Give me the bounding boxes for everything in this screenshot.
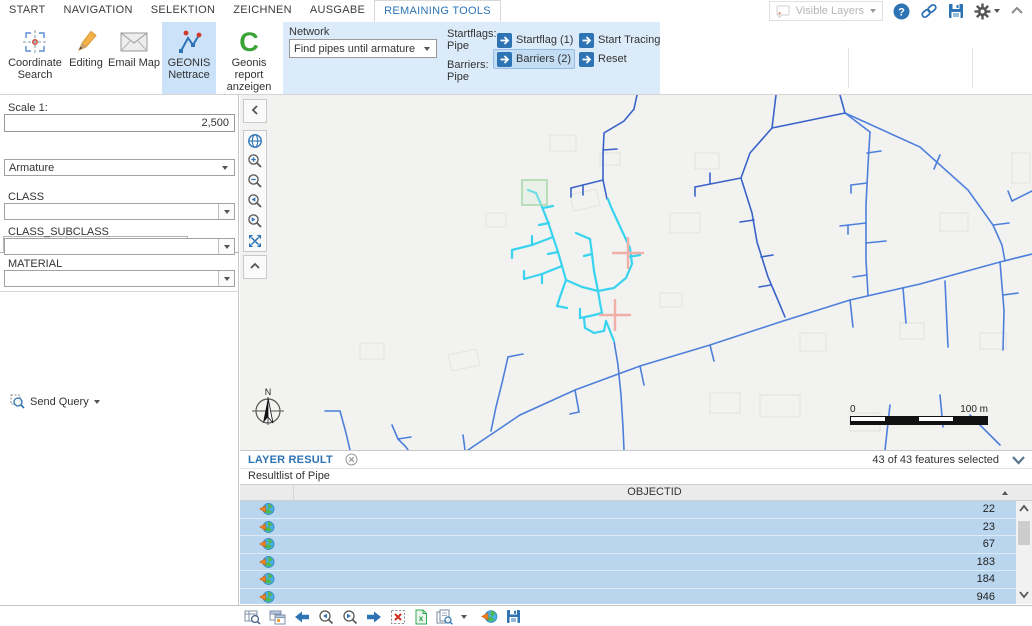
crosshair-icon	[22, 27, 48, 57]
ribbon: Coordinate Search Editing Email Map GEON…	[0, 22, 1032, 95]
tabbar-spacer	[501, 0, 769, 22]
scale-input[interactable]: 2,500	[4, 114, 235, 132]
open-table-icon[interactable]	[269, 609, 286, 625]
table-row[interactable]: 67	[240, 536, 1016, 554]
link-icon[interactable]	[920, 3, 938, 19]
report-preview-icon[interactable]	[436, 609, 453, 625]
panel-divider	[0, 291, 239, 292]
traced-pipes	[512, 190, 640, 341]
report-caret-icon[interactable]	[461, 615, 467, 619]
collapse-results-icon[interactable]	[1011, 454, 1026, 466]
map-canvas[interactable]: N	[240, 95, 1032, 450]
result-panel-header: LAYER RESULT 43 of 43 features selected	[240, 451, 1032, 469]
table-row[interactable]: 184	[240, 571, 1016, 589]
zoom-out-icon[interactable]	[244, 171, 266, 191]
barriers-value: Pipe	[447, 71, 469, 83]
email-map-button[interactable]: Email Map	[106, 22, 162, 94]
arrow-right-icon	[579, 52, 594, 67]
pipe-network	[325, 113, 1032, 450]
scalebar-start-label: 0	[850, 405, 856, 415]
chevron-left-icon	[244, 100, 266, 120]
table-scrollbar[interactable]	[1016, 501, 1032, 604]
chevron-down-icon	[870, 9, 876, 13]
material-label: MATERIAL	[8, 258, 62, 270]
icon-column-header	[240, 485, 294, 500]
geonis-report-label: Geonis report anzeigen	[216, 57, 282, 93]
full-extent-arrows-icon[interactable]	[244, 231, 266, 251]
flash-feature-icon[interactable]	[240, 520, 293, 534]
scalebar-end-label: 100 m	[960, 405, 988, 415]
scrollbar-thumb[interactable]	[1018, 521, 1030, 545]
tab-ausgabe[interactable]: AUSGABE	[301, 0, 374, 22]
start-tracing-button-label: Start Tracing	[598, 34, 660, 46]
pipe-network-dark	[571, 95, 845, 317]
arrow-right-icon	[497, 52, 512, 67]
reset-button-label: Reset	[598, 53, 627, 65]
startflag-button[interactable]: Startflag (1)	[493, 30, 577, 50]
compass-n-label: N	[265, 387, 272, 397]
email-map-label: Email Map	[108, 57, 160, 69]
network-dropdown[interactable]: Find pipes until armature cl...	[289, 39, 437, 58]
tab-zeichnen[interactable]: ZEICHNEN	[224, 0, 301, 22]
query-type-value: Armature	[5, 162, 216, 174]
send-query-label: Send Query	[30, 396, 89, 408]
tab-remaining-tools[interactable]: REMAINING TOOLS	[374, 0, 501, 22]
flash-feature-icon[interactable]	[240, 555, 293, 569]
objectid-value: 184	[293, 573, 1016, 585]
objectid-value: 67	[293, 538, 1016, 550]
objectid-value: 22	[293, 503, 1016, 515]
send-query-caret-icon	[94, 400, 100, 404]
result-rows: 22 23 67 183 184 946	[240, 501, 1016, 604]
flash-all-features-icon[interactable]	[481, 609, 498, 624]
flash-feature-icon[interactable]	[240, 572, 293, 586]
coordinate-search-button[interactable]: Coordinate Search	[6, 22, 64, 94]
nettrace-options-group: Network Find pipes until armature cl... …	[283, 22, 660, 94]
table-row[interactable]: 946	[240, 589, 1016, 605]
table-row[interactable]: 183	[240, 554, 1016, 572]
quick-access-bar: Visible Layers ?	[769, 0, 1032, 22]
geonis-nettrace-button[interactable]: GEONIS Nettrace	[162, 22, 216, 94]
save-icon[interactable]	[948, 3, 964, 19]
tab-start[interactable]: START	[0, 0, 55, 22]
geonis-report-icon: C	[239, 27, 259, 57]
sort-ascending-icon[interactable]	[1002, 491, 1008, 495]
map-navigation-toolbar	[243, 130, 267, 252]
send-query-button[interactable]: Send Query	[10, 394, 100, 409]
start-tracing-button[interactable]: Start Tracing	[575, 30, 664, 50]
pencil-icon	[74, 27, 98, 57]
next-extent-icon[interactable]	[244, 211, 266, 231]
coordinate-search-label: Coordinate Search	[6, 57, 64, 81]
chevron-down-icon[interactable]	[218, 271, 234, 286]
clear-selection-icon[interactable]	[390, 609, 406, 625]
previous-record-icon[interactable]	[294, 610, 310, 624]
table-row[interactable]: 22	[240, 501, 1016, 519]
svg-text:x: x	[419, 614, 424, 623]
barriers-button-label: Barriers (2)	[516, 53, 571, 65]
visible-layers-label: Visible Layers	[796, 5, 864, 17]
export-excel-icon[interactable]: x	[414, 609, 428, 625]
save-result-icon[interactable]	[506, 609, 521, 624]
ribbon-separator	[972, 48, 973, 88]
zoom-next-record-icon[interactable]	[342, 609, 358, 625]
scale-label: Scale 1:	[8, 102, 48, 114]
scroll-down-icon[interactable]	[1017, 589, 1031, 600]
comment-bubble-icon	[776, 5, 790, 18]
objectid-value: 946	[293, 591, 1016, 603]
barrier-marker-2	[599, 299, 631, 331]
editing-button[interactable]: Editing	[66, 22, 106, 94]
scroll-up-icon[interactable]	[1017, 503, 1031, 514]
startflags-label: Startflags:	[447, 28, 497, 40]
network-group-label: Network	[289, 26, 329, 38]
gear-caret-icon	[994, 9, 1000, 13]
ribbon-tab-bar: START NAVIGATION SELEKTION ZEICHNEN AUSG…	[0, 0, 1032, 22]
startflags-value: Pipe	[447, 40, 469, 52]
geonis-report-button[interactable]: C Geonis report anzeigen	[216, 22, 282, 94]
building-outlines	[360, 135, 1030, 431]
layer-result-panel: LAYER RESULT 43 of 43 features selected …	[240, 450, 1032, 605]
next-record-icon[interactable]	[366, 610, 382, 624]
envelope-icon	[120, 27, 148, 57]
arrow-right-icon	[497, 33, 512, 48]
help-icon[interactable]: ?	[893, 3, 910, 20]
flash-feature-icon[interactable]	[240, 502, 293, 516]
globe-full-extent-icon[interactable]	[244, 131, 266, 151]
resultlist-subtitle: Resultlist of Pipe	[240, 468, 1032, 484]
result-table-header: OBJECTID	[240, 484, 1032, 501]
startflag-marker	[522, 180, 547, 205]
class-subclass-label: CLASS_SUBCLASS	[8, 226, 109, 238]
layer-result-tab[interactable]: LAYER RESULT	[248, 454, 333, 466]
compass-north-arrow: N	[252, 387, 284, 425]
query-type-dropdown[interactable]: Armature	[4, 159, 235, 176]
class-dropdown[interactable]	[4, 203, 235, 220]
geonis-nettrace-label: GEONIS Nettrace	[162, 57, 216, 81]
startflag-button-label: Startflag (1)	[516, 34, 573, 46]
query-panel: Scale 1: 2,500 QUERIES TABLE OF CONTENT …	[0, 95, 239, 605]
objectid-value: 183	[293, 556, 1016, 568]
map-view[interactable]: N	[240, 95, 1032, 450]
settings-gear-button[interactable]	[974, 3, 1000, 20]
barriers-button[interactable]: Barriers (2)	[493, 49, 575, 69]
close-result-icon[interactable]	[345, 453, 358, 466]
ribbon-separator	[848, 48, 849, 88]
chevron-up-icon	[244, 256, 266, 276]
svg-text:?: ?	[898, 6, 905, 18]
class-subclass-dropdown[interactable]	[4, 238, 235, 255]
flash-feature-icon[interactable]	[240, 537, 293, 551]
material-dropdown[interactable]	[4, 270, 235, 287]
zoom-previous-record-icon[interactable]	[318, 609, 334, 625]
chevron-down-icon	[216, 166, 234, 170]
editing-label: Editing	[69, 57, 103, 69]
network-dropdown-value: Find pipes until armature cl...	[290, 43, 418, 55]
zoom-in-icon[interactable]	[244, 151, 266, 171]
tab-navigation[interactable]: NAVIGATION	[55, 0, 142, 22]
result-toolbar: x	[0, 605, 1032, 626]
barrier-marker-1	[612, 237, 644, 269]
selection-status: 43 of 43 features selected	[872, 454, 999, 466]
zoom-to-selected-icon[interactable]	[244, 609, 261, 625]
network-trace-icon	[175, 27, 203, 57]
collapse-ribbon-icon[interactable]	[1010, 5, 1024, 17]
objectid-column-header[interactable]: OBJECTID	[293, 485, 1016, 500]
toolbar-collapse-button[interactable]	[243, 255, 267, 279]
flash-feature-icon[interactable]	[240, 590, 293, 604]
class-label: CLASS	[8, 191, 44, 203]
chevron-down-icon[interactable]	[218, 204, 234, 219]
arrow-right-icon	[579, 33, 594, 48]
chevron-down-icon[interactable]	[218, 239, 234, 254]
objectid-value: 23	[293, 521, 1016, 533]
visible-layers-dropdown[interactable]: Visible Layers	[769, 1, 883, 21]
collapse-panel-button[interactable]	[243, 99, 267, 123]
table-row[interactable]: 23	[240, 519, 1016, 537]
chevron-down-icon	[418, 47, 436, 51]
previous-extent-icon[interactable]	[244, 191, 266, 211]
query-magnifier-icon	[10, 394, 25, 409]
map-scalebar: 0 100 m	[850, 405, 988, 425]
barriers-label: Barriers:	[447, 59, 489, 71]
tab-selektion[interactable]: SELEKTION	[142, 0, 224, 22]
reset-button[interactable]: Reset	[575, 49, 631, 69]
